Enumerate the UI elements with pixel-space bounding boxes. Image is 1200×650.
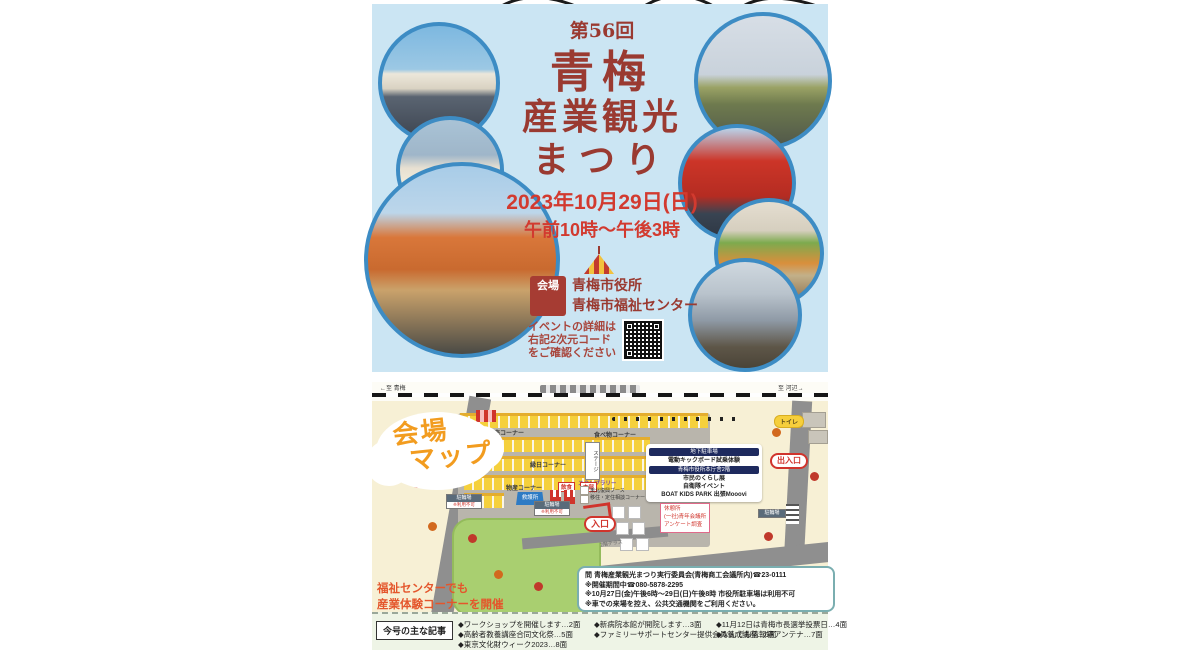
bike-parking-label: 駐輪場 xyxy=(759,510,785,517)
label-consult-corner: 移住・定住相談コーナー xyxy=(590,494,645,501)
tree xyxy=(428,522,437,531)
terrace-tile xyxy=(636,538,649,551)
info-item: BOAT KIDS PARK 出張Mooovi xyxy=(649,491,759,499)
label-food-corner: 食べ物コーナー xyxy=(594,430,636,439)
articles-strip: 今号の主な記事 ◆ワークショップを開催します…2面 ◆高齢者教養講座合同文化祭…… xyxy=(372,612,828,650)
tree xyxy=(534,582,543,591)
article-item: ◆なんでも情報箱アンテナ…7面 xyxy=(716,630,847,640)
contact-line-2: ※開催期間中☎080-5878-2295 xyxy=(585,581,827,591)
train-icon xyxy=(540,385,640,393)
terrace-tile xyxy=(632,522,645,535)
welfare-note: 福祉センターでも 産業体験コーナーを開催 xyxy=(377,580,504,612)
article-item: ◆ワークショップを開催します…2面 xyxy=(458,620,580,630)
flyer-page: 第56回 青梅 産業観光 まつり 2023年10月29日(日) 午前10時〜午後… xyxy=(0,0,1200,650)
rest-line-2: (一社)青年会議所 xyxy=(664,514,706,522)
bike-parking-box-3: 駐輪場 xyxy=(758,509,786,518)
map-heading: 会場 マップ xyxy=(391,413,494,478)
article-item: ◆東京文化財ウィーク2023…8面 xyxy=(458,640,580,650)
info-item: 電動キックボード試乗体験 xyxy=(649,457,759,465)
stage-box: ステージ xyxy=(585,442,600,480)
bike-parking-note: ※利用不可 xyxy=(535,509,569,515)
terrace-tile xyxy=(616,522,629,535)
label-tohoku-booth: 東北復興ブース xyxy=(590,487,625,494)
venue-line-1: 青梅市役所 xyxy=(572,276,698,294)
info-item: 市民のくらし展 xyxy=(649,475,759,483)
articles-column-3: ◆11月12日は青梅市長選挙投票日…4面 ◆なんでも情報箱アンテナ…7面 xyxy=(716,620,847,640)
building-block xyxy=(802,412,826,428)
welfare-note-line-1: 福祉センターでも xyxy=(377,580,504,596)
tree xyxy=(772,428,781,437)
info-header-1: 地下駐車場 xyxy=(649,448,759,456)
people-dots xyxy=(612,417,742,421)
booth-square xyxy=(580,486,589,495)
rail-direction-right: 至 河辺→ xyxy=(778,383,804,392)
railway-line xyxy=(372,393,828,397)
title-line-3: まつり xyxy=(490,131,714,183)
photo-visitors xyxy=(688,258,802,372)
rest-line-3: アンケート調査 xyxy=(664,522,706,530)
rest-line-1: 休憩所 xyxy=(664,506,706,514)
venue-row: 会場 青梅市役所 青梅市福祉センター xyxy=(530,276,698,316)
qr-note-line-3: をご確認ください xyxy=(528,347,616,360)
info-item: 自衛隊イベント xyxy=(649,483,759,491)
bike-parking-label: 駐輪場 xyxy=(447,495,481,502)
label-ennichi-corner: 縁日コーナー xyxy=(530,460,566,469)
booth-square xyxy=(580,495,589,504)
toilet-badge: トイレ xyxy=(774,415,804,428)
crosswalk xyxy=(786,504,799,524)
contact-line-4: ※車での来場を控え、公共交通機関をご利用ください。 xyxy=(585,600,827,610)
tree xyxy=(494,570,503,579)
entrance-gate: 入口 xyxy=(584,516,616,532)
bike-parking-label: 駐輪場 xyxy=(535,502,569,509)
bike-parking-box-2: 駐輪場 ※利用不可 xyxy=(534,501,570,516)
tree xyxy=(468,534,477,543)
qr-note-line-2: 右記2次元コード xyxy=(528,334,616,347)
articles-column-1: ◆ワークショップを開催します…2面 ◆高齢者教養講座合同文化祭…5面 ◆東京文化… xyxy=(458,620,580,650)
building-block xyxy=(808,430,828,444)
bike-parking-box-1: 駐輪場 ※利用不可 xyxy=(446,494,482,509)
label-products-corner: 物産コーナー xyxy=(506,483,542,492)
exit-gate-right: 出入口 xyxy=(770,453,808,469)
qr-code xyxy=(622,319,664,361)
event-date: 2023年10月29日(日) xyxy=(470,186,734,216)
venue-badge: 会場 xyxy=(530,276,566,316)
qr-note: イベントの詳細は 右記2次元コード をご確認ください xyxy=(528,321,616,360)
tree xyxy=(810,472,819,481)
event-time: 午前10時〜午後3時 xyxy=(480,216,724,242)
welfare-note-line-2: 産業体験コーナーを開催 xyxy=(377,596,504,612)
terrace-tile xyxy=(612,506,625,519)
tree xyxy=(764,532,773,541)
contact-info-box: 問 青梅産業観光まつり実行委員会(青梅商工会議所内)☎23-0111 ※開催期間… xyxy=(577,566,835,612)
indoor-events-box: 地下駐車場 電動キックボード試乗体験 青梅市役所本庁舎2階 市民のくらし展 自衛… xyxy=(646,444,762,502)
bike-parking-note: ※利用不可 xyxy=(447,502,481,508)
rail-direction-left: ←至 青梅 xyxy=(380,383,406,392)
info-header-2: 青梅市役所本庁舎2階 xyxy=(649,466,759,474)
articles-header: 今号の主な記事 xyxy=(376,621,453,640)
contact-line-1: 問 青梅産業観光まつり実行委員会(青梅商工会議所内)☎23-0111 xyxy=(585,571,827,581)
article-item: ◆11月12日は青梅市長選挙投票日…4面 xyxy=(716,620,847,630)
tent-icon xyxy=(584,246,614,274)
venue-line-2: 青梅市福祉センター xyxy=(572,294,698,316)
qr-note-line-1: イベントの詳細は xyxy=(528,321,616,334)
terrace-tile xyxy=(628,506,641,519)
article-item: ◆高齢者教養講座合同文化祭…5面 xyxy=(458,630,580,640)
rest-area-box: 休憩所 (一社)青年会議所 アンケート調査 xyxy=(660,503,710,533)
festival-poster: 第56回 青梅 産業観光 まつり 2023年10月29日(日) 午前10時〜午後… xyxy=(372,4,828,372)
contact-line-3: ※10月27日(金)午後6時〜29日(日)午後8時 市役所駐車場は利用不可 xyxy=(585,590,827,600)
